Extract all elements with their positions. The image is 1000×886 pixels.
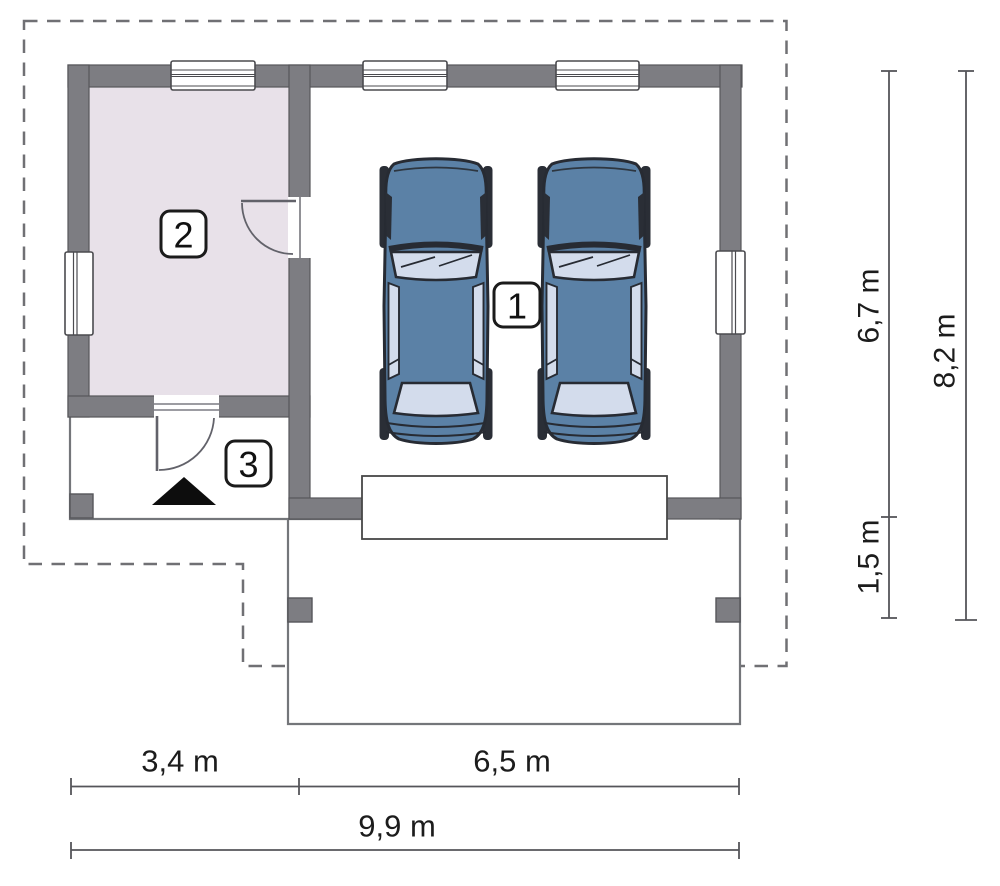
svg-text:1: 1 [507, 286, 527, 327]
svg-text:8,2 m: 8,2 m [929, 313, 962, 388]
svg-text:6,7 m: 6,7 m [853, 268, 886, 343]
svg-text:1,5 m: 1,5 m [853, 519, 886, 594]
svg-text:3,4 m: 3,4 m [141, 744, 219, 779]
svg-text:2: 2 [173, 215, 193, 256]
svg-text:3: 3 [238, 444, 258, 485]
svg-text:6,5 m: 6,5 m [473, 744, 551, 779]
svg-text:9,9 m: 9,9 m [358, 809, 436, 844]
